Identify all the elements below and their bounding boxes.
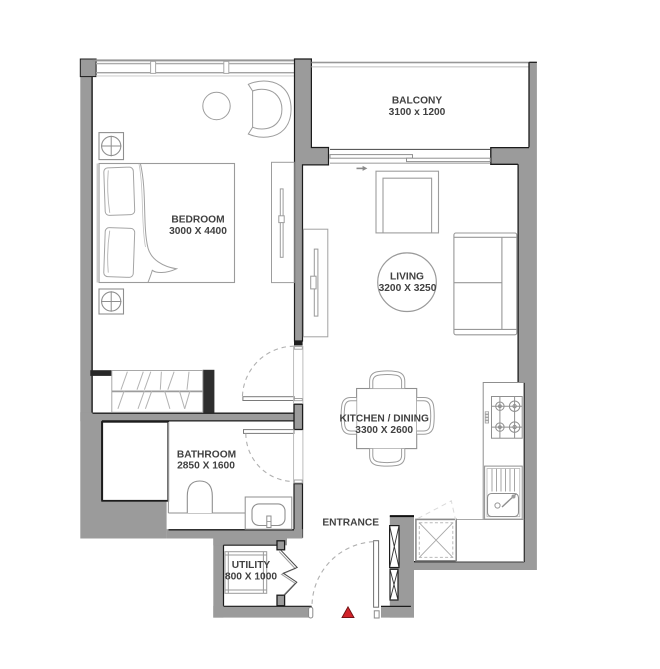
svg-text:3000 X 4400: 3000 X 4400 <box>169 226 227 237</box>
svg-text:2850 X 1600: 2850 X 1600 <box>177 460 235 471</box>
svg-text:BATHROOM: BATHROOM <box>177 450 236 461</box>
svg-text:3100 x 1200: 3100 x 1200 <box>389 107 446 118</box>
svg-text:KITCHEN / DINING: KITCHEN / DINING <box>339 413 429 424</box>
svg-text:800 X 1000: 800 X 1000 <box>225 572 277 583</box>
svg-text:BEDROOM: BEDROOM <box>171 215 224 226</box>
svg-text:3300 X 2600: 3300 X 2600 <box>355 425 413 436</box>
svg-text:UTILITY: UTILITY <box>232 560 271 571</box>
svg-text:LIVING: LIVING <box>390 272 424 283</box>
svg-text:ENTRANCE: ENTRANCE <box>322 518 379 529</box>
svg-text:3200 X 3250: 3200 X 3250 <box>379 283 437 294</box>
svg-text:BALCONY: BALCONY <box>392 95 443 106</box>
